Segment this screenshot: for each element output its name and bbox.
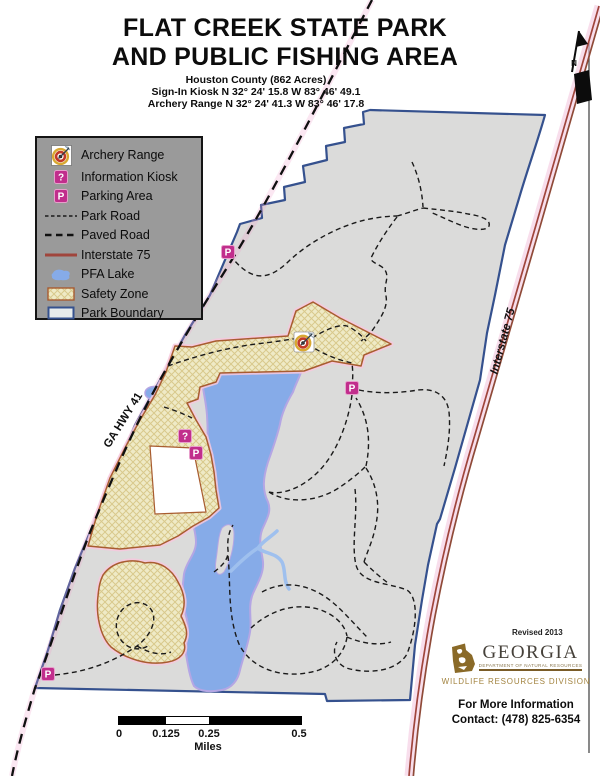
legend-label: Park Boundary (79, 306, 164, 320)
scale-unit-label: Miles (194, 741, 222, 753)
legend-row-boundary: Park Boundary (43, 304, 201, 324)
contact-line-2: Contact: (478) 825-6354 (440, 713, 592, 728)
scale-tick: 0.5 (291, 728, 306, 740)
svg-text:P: P (58, 192, 65, 203)
park-road-icon (43, 213, 79, 219)
parking-marker: P (222, 246, 235, 259)
scale-tick: 0.25 (198, 728, 219, 740)
svg-text:P: P (225, 248, 232, 259)
svg-text:?: ? (58, 172, 64, 183)
svg-text:P: P (193, 449, 200, 460)
svg-text:P: P (349, 384, 356, 395)
svg-text:P: P (45, 670, 52, 681)
legend-row-interstate: Interstate 75 (43, 245, 201, 265)
subtitle-county: Houston County (862 Acres) (0, 74, 556, 86)
legend-row-paved-road: Paved Road (43, 226, 201, 246)
revised-date: Revised 2013 (512, 628, 592, 637)
archery-range-marker (294, 332, 314, 352)
pfa-lake-icon (43, 267, 79, 282)
legend-label: Safety Zone (79, 287, 148, 301)
parking-area-icon: P (43, 189, 79, 203)
scale-tick: 0.125 (152, 728, 180, 740)
legend-label: Archery Range (79, 148, 164, 162)
legend-label: Parking Area (79, 189, 153, 203)
footer-block: Revised 2013 GEORGIA DEPARTMENT OF NATUR… (440, 628, 592, 728)
legend-row-info: ? Information Kiosk (43, 167, 201, 187)
interstate-icon (43, 252, 79, 258)
information-kiosk-icon: ? (43, 170, 79, 184)
legend-label: PFA Lake (79, 267, 135, 281)
legend-label: Interstate 75 (79, 248, 151, 262)
archery-range-icon (43, 145, 79, 166)
parking-marker: P (42, 668, 55, 681)
page-subtitle: Houston County (862 Acres) Sign-In Kiosk… (0, 74, 556, 110)
logo-name: GEORGIA (479, 643, 583, 662)
legend-label: Paved Road (79, 228, 150, 242)
legend-row-parking: P Parking Area (43, 187, 201, 207)
logo-division: WILDLIFE RESOURCES DIVISION (440, 677, 592, 686)
page-title: FLAT CREEK STATE PARK AND PUBLIC FISHING… (0, 14, 585, 72)
scale-bar-graphic (118, 716, 302, 725)
legend-label: Information Kiosk (79, 170, 178, 184)
title-line-2: AND PUBLIC FISHING AREA (0, 43, 585, 72)
map-legend: Archery Range ? Information Kiosk P Park… (35, 136, 203, 320)
scale-tick: 0 (116, 728, 122, 740)
parking-marker: P (346, 382, 359, 395)
info-kiosk-marker: ? (179, 430, 192, 443)
svg-text:?: ? (182, 432, 188, 443)
legend-row-park-road: Park Road (43, 206, 201, 226)
contact-line-1: For More Information (440, 698, 592, 713)
logo-dept: DEPARTMENT OF NATURAL RESOURCES (479, 663, 583, 671)
georgia-state-icon (450, 643, 477, 674)
subtitle-archery-coords: Archery Range N 32° 24' 41.3 W 83° 46' 1… (0, 98, 556, 110)
subtitle-kiosk-coords: Sign-In Kiosk N 32° 24' 15.8 W 83° 46' 4… (0, 86, 556, 98)
map-page: GA HWY 41 Interstate 75 P P P P (0, 0, 600, 776)
legend-row-safety: Safety Zone (43, 284, 201, 304)
paved-road-icon (43, 232, 79, 238)
parking-marker: P (190, 447, 203, 460)
legend-row-lake: PFA Lake (43, 265, 201, 285)
safety-zone-south (97, 561, 186, 663)
interstate-75-label: Interstate 75 (489, 306, 518, 375)
georgia-dnr-logo: GEORGIA DEPARTMENT OF NATURAL RESOURCES (440, 643, 592, 674)
safety-zone-icon (43, 287, 79, 301)
title-line-1: FLAT CREEK STATE PARK (0, 14, 585, 43)
park-boundary-icon (43, 306, 79, 320)
legend-row-archery: Archery Range (43, 143, 201, 167)
legend-label: Park Road (79, 209, 140, 223)
